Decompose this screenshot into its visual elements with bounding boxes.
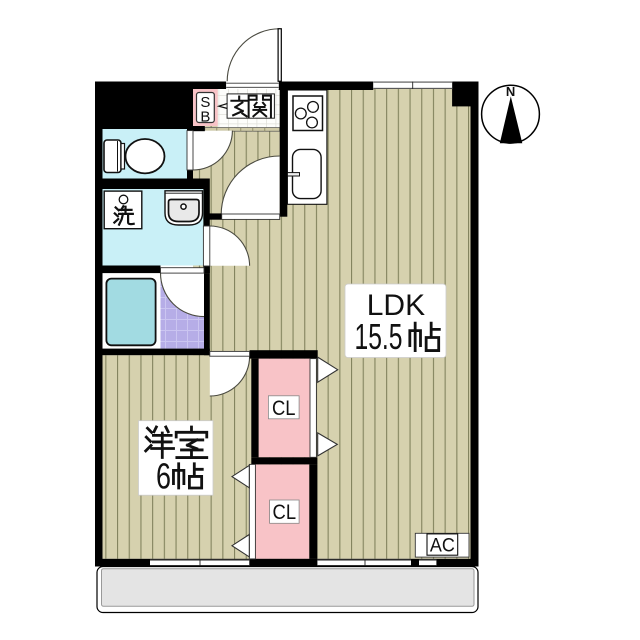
svg-text:6: 6	[156, 456, 171, 497]
svg-text:CL: CL	[272, 397, 296, 420]
svg-text:N: N	[506, 84, 515, 99]
svg-text:CL: CL	[273, 501, 297, 524]
svg-text:B: B	[200, 108, 210, 125]
svg-text:AC: AC	[430, 535, 455, 556]
svg-text:15.5: 15.5	[355, 316, 403, 357]
